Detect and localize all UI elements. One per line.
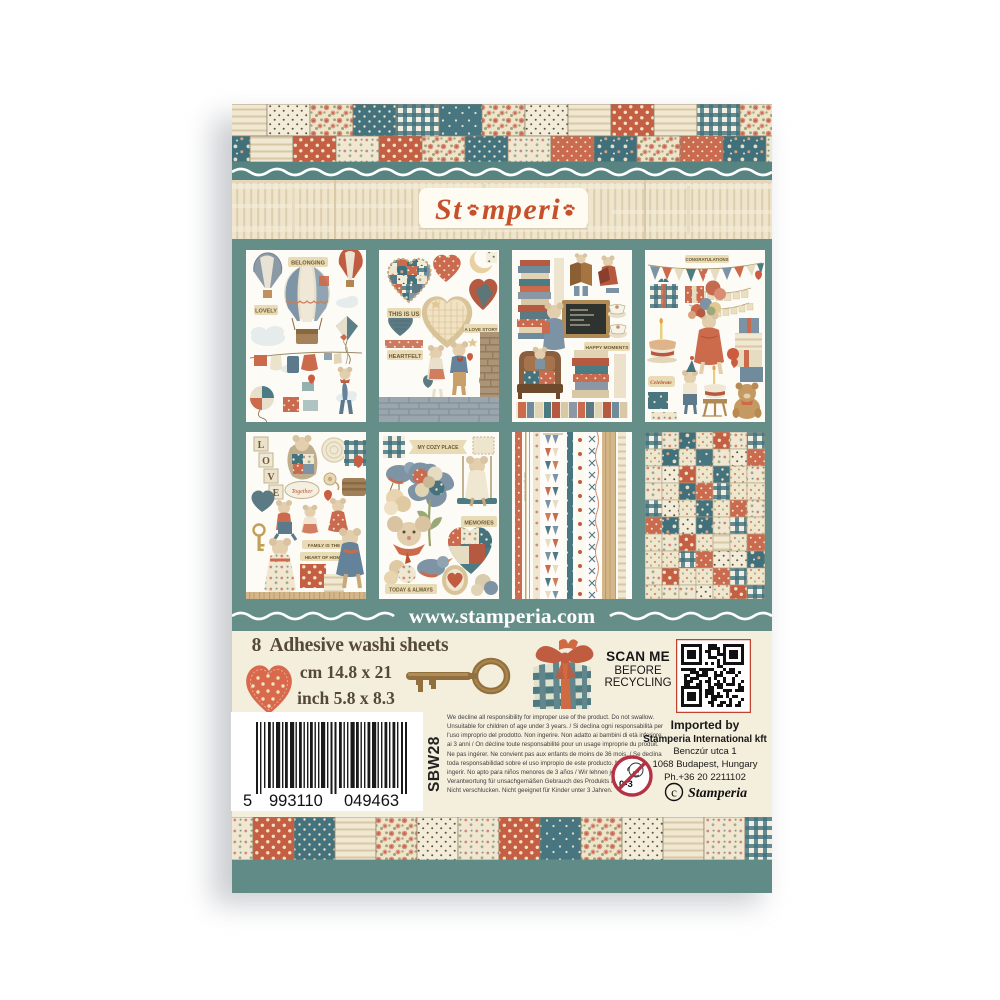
svg-text:St: St: [435, 193, 463, 226]
svg-text:HEART OF HOME: HEART OF HOME: [305, 555, 344, 560]
svg-text:5: 5: [243, 792, 252, 810]
svg-text:CONGRATULATIONS: CONGRATULATIONS: [685, 257, 728, 262]
svg-text:mperi: mperi: [482, 193, 561, 226]
svg-text:MEMORIES: MEMORIES: [464, 521, 494, 527]
svg-text:Celebrate: Celebrate: [650, 380, 672, 386]
svg-text:L: L: [258, 440, 265, 451]
svg-text:O: O: [262, 456, 270, 467]
svg-text:www.stamperia.com: www.stamperia.com: [409, 604, 595, 628]
svg-text:Together: Together: [291, 489, 313, 495]
svg-text:FAMILY IS THE: FAMILY IS THE: [308, 543, 340, 548]
svg-text:Stamperia: Stamperia: [688, 786, 747, 801]
svg-text:BELONGING: BELONGING: [291, 261, 325, 267]
svg-text:LOVELY: LOVELY: [255, 309, 277, 315]
svg-text:993110: 993110: [269, 792, 323, 810]
svg-text:c: c: [671, 785, 677, 800]
svg-text:stamperia washi: stamperia washi: [523, 472, 528, 501]
svg-text:V: V: [267, 472, 275, 483]
svg-text:TODAY & ALWAYS: TODAY & ALWAYS: [389, 588, 433, 594]
svg-text:HEARTFELT: HEARTFELT: [389, 354, 422, 360]
svg-text:A LOVE STORY: A LOVE STORY: [464, 327, 497, 332]
svg-text:MY COZY PLACE: MY COZY PLACE: [418, 445, 460, 451]
svg-text:049463: 049463: [344, 792, 399, 810]
svg-text:THIS IS US: THIS IS US: [388, 312, 419, 318]
